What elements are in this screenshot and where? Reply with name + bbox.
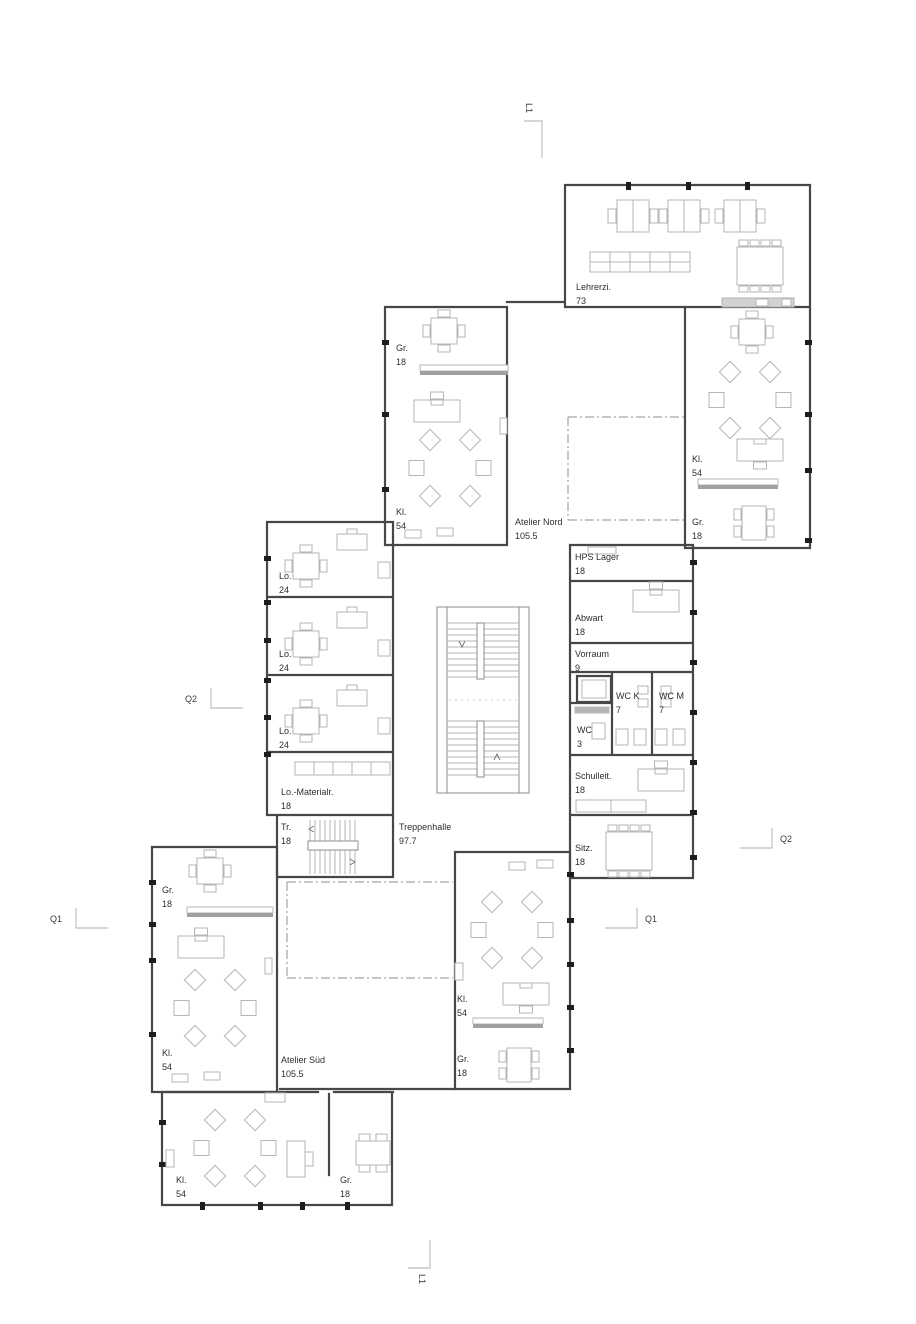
room-label-gr-sued: Gr.18 bbox=[340, 1174, 352, 1201]
room-name: HPS Lager bbox=[575, 551, 619, 565]
room-name: Tr. bbox=[281, 821, 291, 835]
room-name: Lehrerzi. bbox=[576, 281, 611, 295]
room-name: WC M bbox=[659, 690, 684, 704]
marker-text: L1 bbox=[417, 1274, 427, 1284]
room-name: Gr. bbox=[457, 1053, 469, 1067]
room-name: WC K bbox=[616, 690, 640, 704]
floor-plan-page: Lehrerzi.73 Gr.18 Kl.54 Atelier Nord105.… bbox=[0, 0, 916, 1324]
floor-plan-drawing bbox=[0, 0, 916, 1324]
section-marker-q1-left: Q1 bbox=[50, 914, 62, 924]
room-name: Kl. bbox=[396, 506, 407, 520]
room-label-kl-ost: Kl.54 bbox=[692, 453, 703, 480]
room-name: Gr. bbox=[340, 1174, 352, 1188]
room-name: Gr. bbox=[396, 342, 408, 356]
tr-staircase bbox=[308, 820, 358, 874]
room-area: 18 bbox=[575, 784, 612, 798]
section-marker-l1-top: L1 bbox=[524, 103, 534, 113]
room-label-abwart: Abwart18 bbox=[575, 612, 603, 639]
room-label-lo-3: Lo.24 bbox=[279, 725, 292, 752]
room-label-tr: Tr.18 bbox=[281, 821, 291, 848]
room-label-kl-sued: Kl.54 bbox=[176, 1174, 187, 1201]
room-name: Sitz. bbox=[575, 842, 593, 856]
section-marker-q2-left: Q2 bbox=[185, 694, 197, 704]
room-label-gr-west: Gr.18 bbox=[162, 884, 174, 911]
room-label-gr-sued-ost: Gr.18 bbox=[457, 1053, 469, 1080]
room-label-lo-2: Lo.24 bbox=[279, 648, 292, 675]
room-name: Lo. bbox=[279, 725, 292, 739]
room-name: Atelier Nord bbox=[515, 516, 563, 530]
room-name: Treppenhalle bbox=[399, 821, 451, 835]
room-name: Abwart bbox=[575, 612, 603, 626]
room-area: 18 bbox=[162, 898, 174, 912]
furniture bbox=[166, 200, 794, 1187]
marker-text: Q2 bbox=[185, 694, 197, 704]
room-area: 73 bbox=[576, 295, 611, 309]
room-area: 18 bbox=[340, 1188, 352, 1202]
room-area: 18 bbox=[575, 565, 619, 579]
room-area: 7 bbox=[659, 704, 684, 718]
room-name: Lo.-Materialr. bbox=[281, 786, 334, 800]
room-label-gr-ost: Gr.18 bbox=[692, 516, 704, 543]
walls bbox=[152, 185, 810, 1205]
section-marker-q2-right: Q2 bbox=[780, 834, 792, 844]
room-name: Kl. bbox=[176, 1174, 187, 1188]
room-name: WC bbox=[577, 724, 592, 738]
room-label-wc-k: WC K7 bbox=[616, 690, 640, 717]
room-area: 18 bbox=[457, 1067, 469, 1081]
room-name: Lo. bbox=[279, 648, 292, 662]
section-marker-q1-right: Q1 bbox=[645, 914, 657, 924]
room-area: 24 bbox=[279, 739, 292, 753]
room-name: Vorraum bbox=[575, 648, 609, 662]
room-area: 97.7 bbox=[399, 835, 451, 849]
marker-text: Q2 bbox=[780, 834, 792, 844]
room-label-lo-materialraum: Lo.-Materialr.18 bbox=[281, 786, 334, 813]
room-name: Kl. bbox=[457, 993, 468, 1007]
room-area: 18 bbox=[575, 856, 593, 870]
central-staircase bbox=[437, 607, 529, 793]
room-area: 54 bbox=[162, 1061, 173, 1075]
room-area: 18 bbox=[575, 626, 603, 640]
room-area: 105.5 bbox=[515, 530, 563, 544]
section-marker-l1-bottom: L1 bbox=[417, 1274, 427, 1284]
room-label-kl-sued-ost: Kl.54 bbox=[457, 993, 468, 1020]
room-area: 18 bbox=[396, 356, 408, 370]
room-name: Gr. bbox=[162, 884, 174, 898]
marker-text: Q1 bbox=[645, 914, 657, 924]
marker-text: Q1 bbox=[50, 914, 62, 924]
room-area: 24 bbox=[279, 584, 292, 598]
room-label-kl-nord: Kl.54 bbox=[396, 506, 407, 533]
room-label-wc-m: WC M7 bbox=[659, 690, 684, 717]
room-area: 54 bbox=[457, 1007, 468, 1021]
marker-text: L1 bbox=[524, 103, 534, 113]
room-area: 3 bbox=[577, 738, 592, 752]
room-area: 18 bbox=[692, 530, 704, 544]
room-name: Kl. bbox=[162, 1047, 173, 1061]
room-label-gr-nord: Gr.18 bbox=[396, 342, 408, 369]
room-label-schulleitung: Schulleit.18 bbox=[575, 770, 612, 797]
room-label-treppenhalle: Treppenhalle97.7 bbox=[399, 821, 451, 848]
room-area: 24 bbox=[279, 662, 292, 676]
room-label-kl-west: Kl.54 bbox=[162, 1047, 173, 1074]
room-area: 18 bbox=[281, 800, 334, 814]
room-area: 9 bbox=[575, 662, 609, 676]
room-area: 54 bbox=[396, 520, 407, 534]
room-area: 18 bbox=[281, 835, 291, 849]
room-name: Gr. bbox=[692, 516, 704, 530]
room-name: Lo. bbox=[279, 570, 292, 584]
room-label-sitzungszimmer: Sitz.18 bbox=[575, 842, 593, 869]
room-name: Schulleit. bbox=[575, 770, 612, 784]
room-label-atelier-nord: Atelier Nord105.5 bbox=[515, 516, 563, 543]
room-area: 54 bbox=[692, 467, 703, 481]
room-label-vorraum: Vorraum9 bbox=[575, 648, 609, 675]
window-mullions bbox=[149, 182, 812, 1210]
room-area: 7 bbox=[616, 704, 640, 718]
room-label-lehrerzimmer: Lehrerzi.73 bbox=[576, 281, 611, 308]
room-label-lo-1: Lo.24 bbox=[279, 570, 292, 597]
room-area: 105.5 bbox=[281, 1068, 325, 1082]
room-label-wc: WC3 bbox=[577, 724, 592, 751]
room-label-atelier-sued: Atelier Süd105.5 bbox=[281, 1054, 325, 1081]
room-area: 54 bbox=[176, 1188, 187, 1202]
room-label-hps-lager: HPS Lager18 bbox=[575, 551, 619, 578]
room-name: Kl. bbox=[692, 453, 703, 467]
room-name: Atelier Süd bbox=[281, 1054, 325, 1068]
